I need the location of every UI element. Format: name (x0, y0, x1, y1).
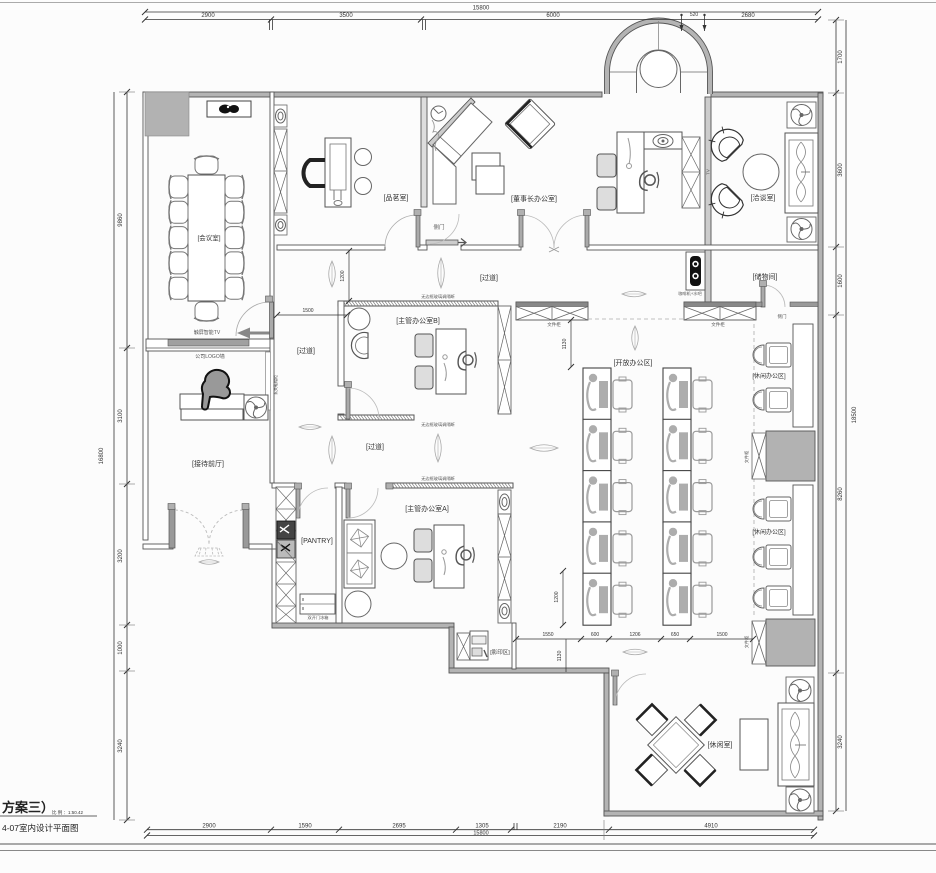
svg-text:侧门: 侧门 (433, 223, 444, 231)
svg-text:15800: 15800 (473, 6, 490, 12)
svg-text:TV: TV (706, 169, 711, 175)
svg-text:3600: 3600 (838, 163, 844, 177)
svg-text:1200: 1200 (340, 270, 346, 281)
svg-text:520: 520 (690, 12, 699, 18)
svg-text:无边框玻璃调隔断: 无边框玻璃调隔断 (421, 293, 455, 300)
svg-text:方案三）: 方案三） (2, 800, 54, 815)
svg-text:8260: 8260 (838, 487, 844, 501)
svg-text:[储物间]: [储物间] (753, 272, 778, 281)
svg-text:2190: 2190 (553, 824, 567, 830)
svg-text:2900: 2900 (201, 13, 215, 19)
svg-text:[开放办公区]: [开放办公区] (614, 358, 653, 367)
svg-text:4910: 4910 (704, 824, 718, 830)
svg-text:1590: 1590 (298, 824, 312, 830)
svg-text:侧门: 侧门 (778, 313, 787, 320)
svg-text:文件柜: 文件柜 (711, 321, 725, 328)
svg-text:3200: 3200 (118, 549, 124, 563)
svg-text:18500: 18500 (852, 406, 858, 423)
svg-text:咖啡机+水吧: 咖啡机+水吧 (678, 290, 702, 297)
svg-text:比 例 ：1:50.42: 比 例 ：1:50.42 (52, 809, 84, 816)
svg-text:2695: 2695 (392, 824, 406, 830)
svg-text:600: 600 (591, 632, 600, 638)
svg-text:[影印区]: [影印区] (490, 648, 510, 656)
svg-text:玄关鞋帽柜: 玄关鞋帽柜 (272, 375, 278, 395)
svg-text:[休闲办公区]: [休闲办公区] (752, 528, 786, 536)
svg-text:1600: 1600 (838, 274, 844, 288)
svg-text:[过道]: [过道] (366, 442, 384, 451)
svg-text:[PANTRY]: [PANTRY] (301, 538, 333, 545)
svg-text:16800: 16800 (99, 447, 105, 464)
svg-text:[董事长办公室]: [董事长办公室] (511, 194, 557, 203)
svg-text:6000: 6000 (546, 13, 560, 19)
svg-text:1206: 1206 (629, 632, 640, 638)
svg-text:1000: 1000 (118, 641, 124, 655)
svg-text:[洽谈室]: [洽谈室] (751, 193, 776, 202)
svg-text:1500: 1500 (302, 308, 313, 314)
svg-text:1700: 1700 (838, 50, 844, 64)
svg-text:[休闲室]: [休闲室] (708, 740, 733, 749)
svg-text:[品茗室]: [品茗室] (384, 193, 409, 202)
svg-text:1305: 1305 (475, 824, 489, 830)
svg-text:[主管办公室B]: [主管办公室B] (396, 316, 440, 325)
svg-text:[接待前厅]: [接待前厅] (192, 459, 224, 468)
svg-text:1200: 1200 (554, 591, 560, 602)
svg-text:文件柜: 文件柜 (743, 451, 750, 464)
svg-text:文件柜: 文件柜 (743, 636, 750, 649)
svg-text:公司LOGO墙: 公司LOGO墙 (195, 353, 224, 360)
svg-text:文件柜: 文件柜 (547, 321, 561, 328)
svg-text:650: 650 (671, 632, 680, 638)
svg-text:15800: 15800 (473, 830, 488, 836)
svg-text:3500: 3500 (339, 13, 353, 19)
svg-text:[过道]: [过道] (480, 273, 498, 282)
svg-text:2900: 2900 (202, 824, 216, 830)
svg-text:1500: 1500 (716, 632, 727, 638)
svg-text:[过道]: [过道] (297, 346, 315, 355)
svg-text:1130: 1130 (557, 650, 563, 661)
svg-text:[休闲办公区]: [休闲办公区] (752, 372, 786, 380)
svg-text:2680: 2680 (741, 13, 755, 19)
svg-text:触屏智能TV: 触屏智能TV (194, 329, 221, 336)
svg-text:双开门冰箱: 双开门冰箱 (308, 614, 329, 621)
svg-text:无边框玻璃调隔断: 无边框玻璃调隔断 (421, 475, 455, 482)
svg-text:无边框玻璃调隔断: 无边框玻璃调隔断 (421, 421, 455, 428)
svg-text:3240: 3240 (838, 735, 844, 749)
svg-text:9860: 9860 (118, 213, 124, 227)
svg-text:[主管办公室A]: [主管办公室A] (405, 504, 449, 513)
svg-text:4-07室内设计平面图: 4-07室内设计平面图 (2, 823, 79, 833)
svg-text:3100: 3100 (118, 409, 124, 423)
svg-text:1130: 1130 (562, 338, 568, 349)
svg-text:1550: 1550 (542, 632, 553, 638)
svg-text:[会议室]: [会议室] (197, 233, 220, 242)
svg-text:3240: 3240 (118, 739, 124, 753)
